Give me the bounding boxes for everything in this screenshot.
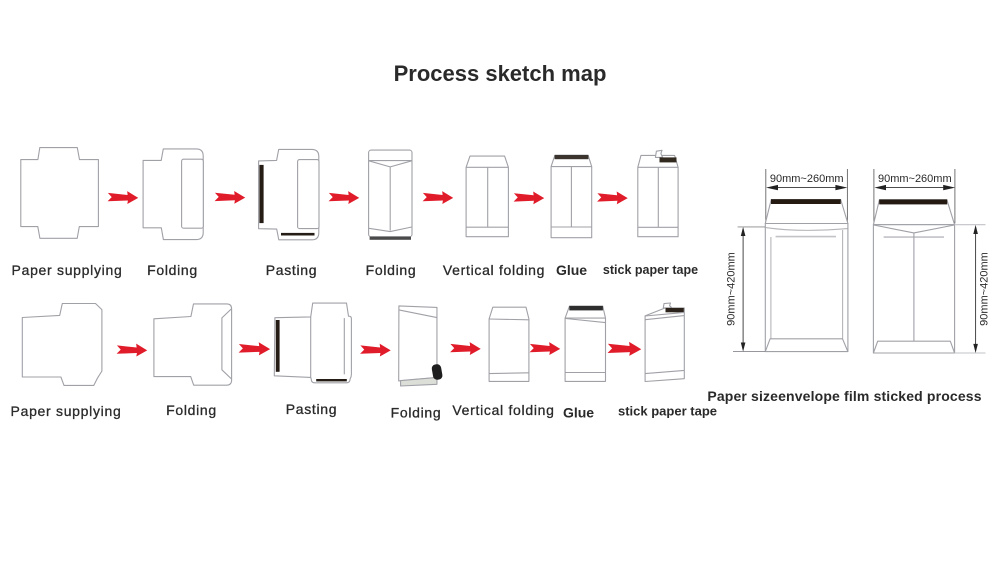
svg-text:stick paper tape: stick paper tape xyxy=(603,263,698,277)
svg-text:90mm~260mm: 90mm~260mm xyxy=(770,173,844,185)
svg-text:Glue: Glue xyxy=(563,405,594,421)
svg-text:stick paper tape: stick paper tape xyxy=(618,404,717,419)
svg-text:Glue: Glue xyxy=(556,262,587,278)
svg-text:90mm~260mm: 90mm~260mm xyxy=(878,173,952,185)
svg-text:90mm~420mm: 90mm~420mm xyxy=(979,252,991,326)
svg-text:Paper supplying: Paper supplying xyxy=(11,403,122,419)
svg-text:Vertical folding: Vertical folding xyxy=(443,262,545,278)
svg-text:Vertical folding: Vertical folding xyxy=(452,402,554,418)
svg-text:Folding: Folding xyxy=(147,262,198,278)
svg-text:Process sketch map: Process sketch map xyxy=(394,61,607,86)
svg-text:Paper sizeenvelope film sticke: Paper sizeenvelope film sticked process xyxy=(707,388,981,404)
svg-text:Folding: Folding xyxy=(166,402,217,418)
svg-text:90mm~420mm: 90mm~420mm xyxy=(726,252,738,326)
svg-text:Pasting: Pasting xyxy=(286,401,338,417)
svg-text:Paper supplying: Paper supplying xyxy=(12,262,123,278)
svg-text:Folding: Folding xyxy=(391,405,442,421)
svg-text:Folding: Folding xyxy=(366,262,417,278)
svg-text:Pasting: Pasting xyxy=(266,262,318,278)
